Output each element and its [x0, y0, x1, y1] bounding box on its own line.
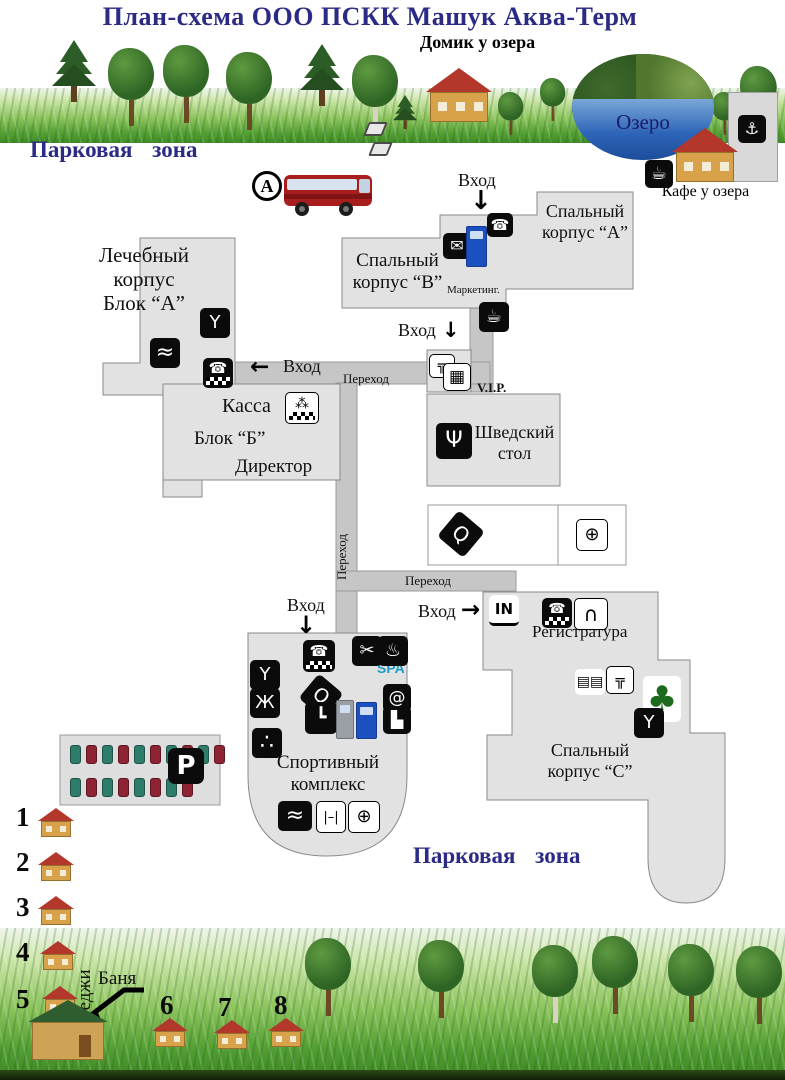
label-line: комплекс — [268, 774, 388, 796]
entrance-arrow-medical: ← — [250, 356, 269, 379]
entrance-label-registry: Вход — [418, 601, 456, 622]
cashier-icon: ⁂ — [285, 392, 319, 424]
kassa-label: Касса — [222, 395, 271, 418]
passage-label-1: Переход — [343, 371, 389, 387]
cottage-number-6: 6 — [160, 990, 174, 1021]
park-zone-bottom-label: Парковая зона — [413, 843, 581, 869]
cottage-number-4: 4 — [16, 937, 30, 968]
parking-icon: P — [168, 748, 204, 784]
badminton-icon: ⊕ — [576, 519, 608, 551]
sleep-a-label: Спальный корпус “А” — [540, 201, 630, 242]
label-line: Спальный — [540, 201, 630, 222]
cottage-1 — [38, 808, 74, 837]
atm-icon — [466, 226, 487, 267]
arch-icon: ∩ — [574, 598, 608, 630]
cottage-3 — [38, 896, 74, 925]
cottage-number-2: 2 — [16, 847, 30, 878]
sleep-c-label: Спальный корпус “С” — [540, 740, 640, 781]
cottage-number-1: 1 — [16, 802, 30, 833]
bar-icon: Y — [634, 708, 664, 738]
swimming-pool-icon: ≈ — [278, 801, 312, 831]
restaurant-icon: Ψ — [436, 423, 472, 459]
label-line: Спортивный — [268, 752, 388, 774]
entrance-arrow-korpus-a: ↓ — [470, 188, 492, 214]
entrance-arrow-sport: ↓ — [296, 613, 316, 637]
entrance-label-medical: Вход — [283, 356, 321, 377]
cottage-6 — [152, 1018, 188, 1047]
medical-building-label: Лечебный корпус Блок “А” — [55, 243, 233, 315]
passage-label-vertical: Переход — [334, 495, 350, 580]
sport-complex-label: Спортивный комплекс — [268, 752, 388, 796]
payment-terminal-icon — [336, 700, 354, 739]
label-line: стол — [472, 443, 557, 464]
passage-label-2: Переход — [405, 573, 451, 589]
cottage-8 — [268, 1018, 304, 1047]
park-tree — [668, 944, 714, 1022]
cottage-number-7: 7 — [218, 992, 232, 1023]
payphone-icon: ☎ — [487, 213, 513, 237]
cottage-7 — [214, 1020, 250, 1049]
turnstile-icon: IN — [489, 595, 519, 626]
dumbbell-icon: |–| — [316, 801, 346, 833]
buildings-layer — [0, 0, 785, 1080]
basketball-icon: ⊕ — [348, 801, 380, 833]
gym-icon: Ж — [250, 688, 280, 718]
skate-rental-icon: ┗ — [305, 702, 337, 734]
taxi-icon: ☎ — [203, 358, 233, 388]
bar-icon: Y — [250, 660, 280, 690]
faucet-icon: ╦ — [606, 666, 634, 694]
label-line: корпус “А” — [540, 222, 630, 243]
sleep-b-label: Спальный корпус “В” — [350, 250, 445, 294]
label-line: корпус — [55, 267, 233, 291]
market-icon: ▤▤ — [575, 669, 605, 695]
park-tree — [418, 940, 464, 1018]
atm-icon — [356, 702, 377, 739]
resort-site-map: План-схема ООО ПСКК Машук Аква-Терм Озер… — [0, 0, 785, 1080]
park-tree — [736, 946, 782, 1024]
entrance-arrow-registry: → — [461, 599, 480, 622]
entrance-arrow-korpus-b: ↓ — [442, 320, 460, 341]
cottage-number-8: 8 — [274, 990, 288, 1021]
buffet-label: Шведский стол — [472, 422, 557, 463]
park-tree — [592, 936, 638, 1014]
bar-icon: Y — [200, 308, 230, 338]
cottage-number-3: 3 — [16, 892, 30, 923]
entrance-label-korpus-b: Вход — [398, 320, 436, 341]
label-line: Спальный — [350, 250, 445, 272]
taxi-icon: ☎ — [542, 598, 572, 628]
banya-house — [28, 1000, 108, 1060]
label-line: корпус “С” — [540, 761, 640, 782]
spa-sauna-icon: ♨ — [378, 636, 408, 666]
cottage-2 — [38, 852, 74, 881]
gift-icon: ▦ — [443, 363, 471, 391]
block-b-label: Блок “Б” — [194, 428, 265, 450]
billiards-icon: ∴ — [252, 728, 282, 758]
director-label: Директор — [235, 456, 312, 478]
taxi-icon: ☎ — [303, 640, 335, 672]
cottage-4 — [40, 941, 76, 970]
label-line: Шведский — [472, 422, 557, 443]
label-line: Лечебный — [55, 243, 233, 267]
swimming-pool-icon: ≈ — [150, 338, 180, 368]
park-tree — [305, 938, 351, 1016]
label-line: корпус “В” — [350, 272, 445, 294]
marketing-label: Маркетинг. — [447, 284, 500, 296]
label-line: Спальный — [540, 740, 640, 761]
birch-tree — [532, 945, 578, 1023]
coffee-icon: ☕ — [479, 302, 509, 332]
shoe-rental-icon: ▙ — [383, 706, 411, 734]
vip-label: V.I.P. — [477, 380, 506, 396]
bottom-dark-strip — [0, 1070, 785, 1080]
